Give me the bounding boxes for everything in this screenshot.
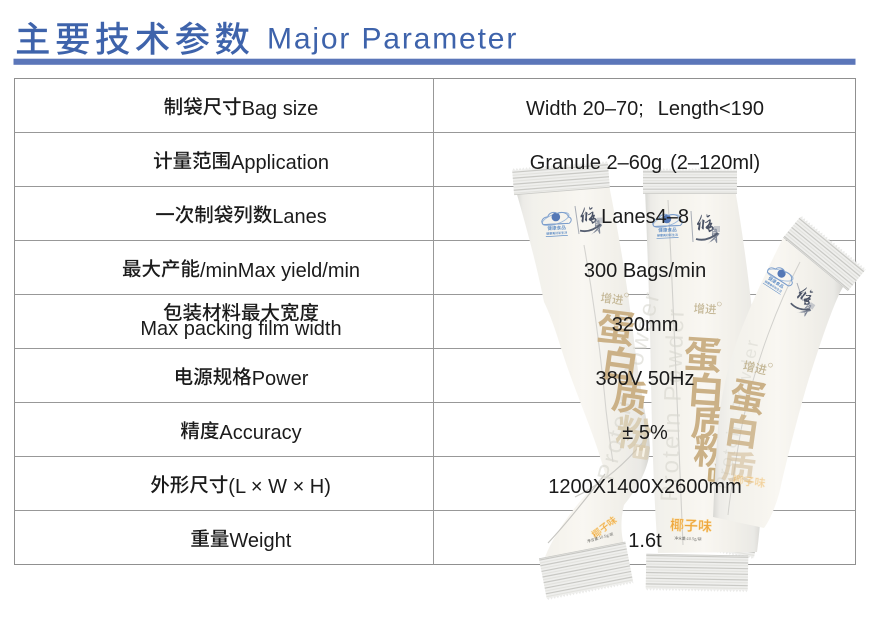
svg-text:Weight: Weight: [229, 530, 291, 552]
svg-text:Power: Power: [252, 368, 309, 390]
svg-text:Bag size: Bag size: [242, 98, 319, 120]
svg-text:Application: Application: [231, 152, 329, 174]
svg-text:1200X1400X2600mm: 1200X1400X2600mm: [548, 476, 741, 498]
svg-text:320mm: 320mm: [612, 314, 679, 336]
svg-text:± 5%: ± 5%: [622, 422, 668, 444]
svg-text:380V 50Hz: 380V 50Hz: [596, 368, 695, 390]
svg-text:Length<190: Length<190: [658, 98, 764, 120]
svg-text:(L × W × H): (L × W × H): [228, 476, 331, 498]
svg-text:300 Bags/min: 300 Bags/min: [584, 260, 706, 282]
svg-text:Major Parameter: Major Parameter: [267, 23, 518, 56]
svg-text:Accuracy: Accuracy: [219, 422, 301, 444]
svg-text:Width 20–70;: Width 20–70;: [526, 98, 644, 120]
svg-text:(2–120ml): (2–120ml): [670, 152, 760, 174]
svg-text:/minMax yield/min: /minMax yield/min: [200, 260, 360, 282]
svg-text:1.6t: 1.6t: [628, 530, 662, 552]
svg-text:Lanes: Lanes: [272, 206, 327, 228]
svg-text:Granule 2–60g: Granule 2–60g: [530, 152, 662, 174]
svg-text:Max packing film width: Max packing film width: [140, 318, 341, 340]
svg-text:Lanes4–8: Lanes4–8: [601, 206, 689, 228]
